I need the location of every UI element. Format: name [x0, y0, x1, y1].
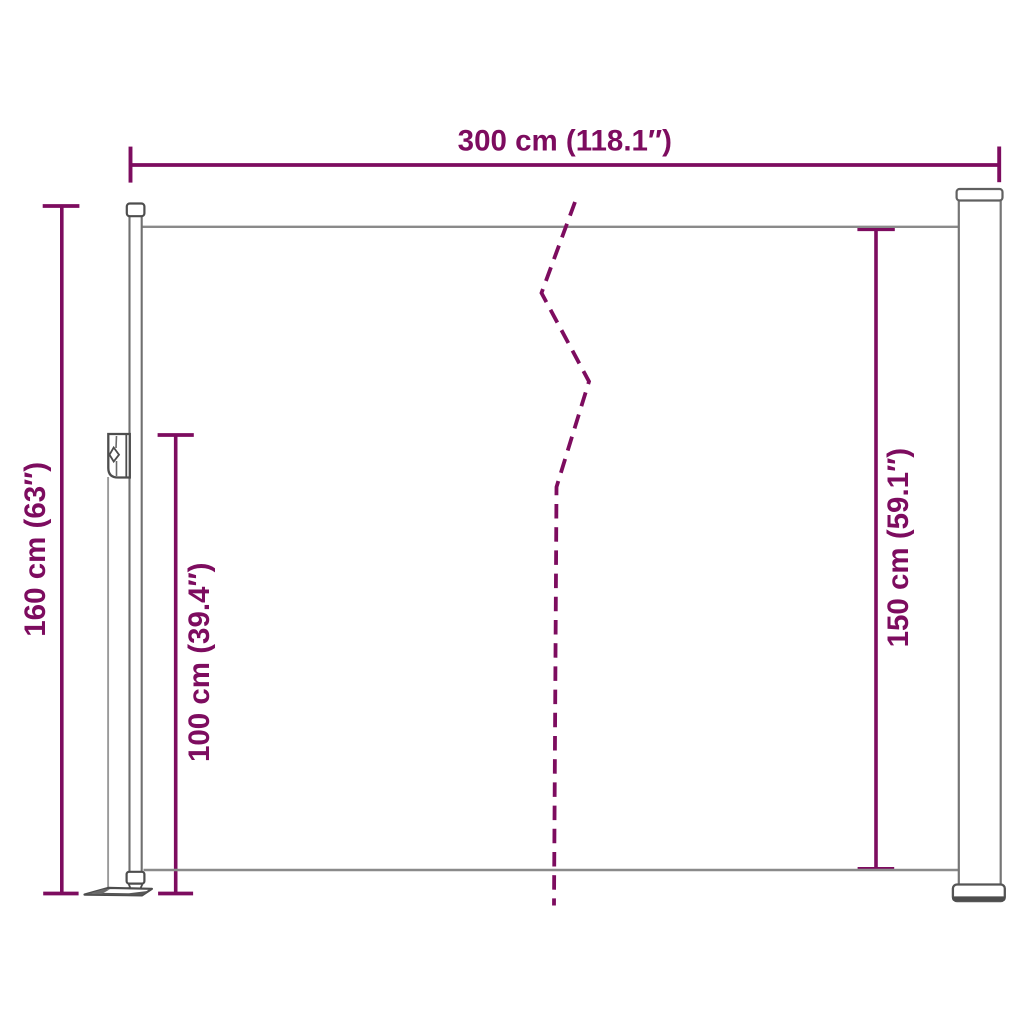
svg-text:100 cm (39.4″): 100 cm (39.4″): [183, 563, 216, 762]
svg-text:300 cm (118.1″): 300 cm (118.1″): [458, 125, 672, 158]
svg-text:150 cm (59.1″): 150 cm (59.1″): [882, 448, 915, 647]
svg-text:160 cm (63″): 160 cm (63″): [19, 462, 52, 637]
